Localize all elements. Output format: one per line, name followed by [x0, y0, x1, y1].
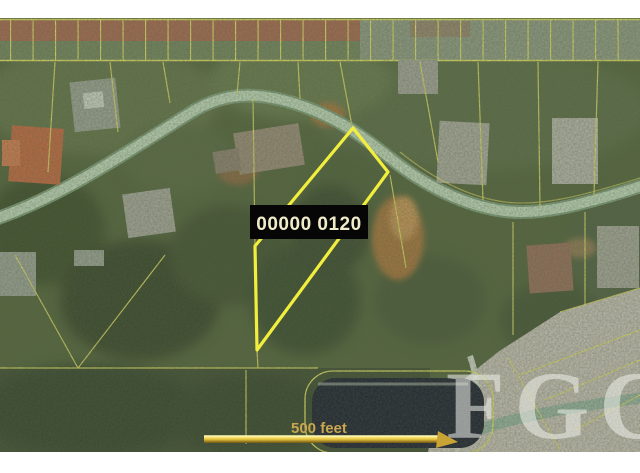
bottom-margin: [0, 452, 640, 473]
scale-bar-text: 500 feet: [291, 420, 347, 437]
top-margin: [0, 0, 640, 18]
parcel-label-text: 00000 0120: [256, 214, 361, 235]
watermark-text: FGC: [446, 352, 640, 459]
parcel-label: 00000 0120: [250, 205, 368, 239]
parcel-map-viewport[interactable]: FGC 00000 0120 500 feet: [0, 0, 640, 473]
aerial-map[interactable]: FGC 00000 0120 500 feet: [0, 0, 640, 473]
